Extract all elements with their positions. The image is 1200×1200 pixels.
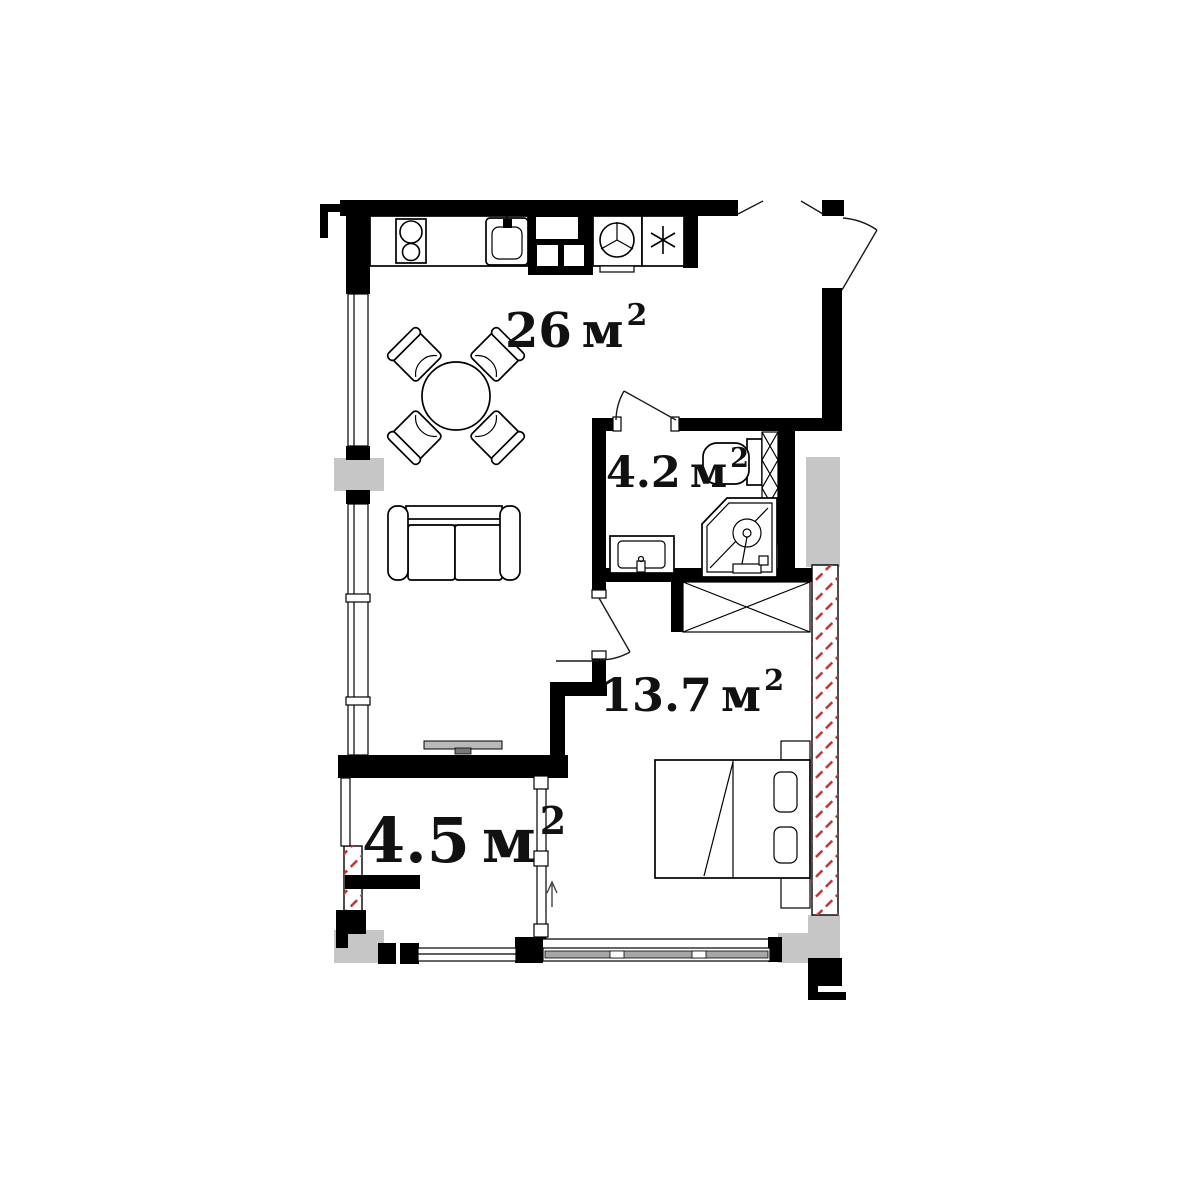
bedroom-door bbox=[556, 590, 630, 661]
hatched-wall-right bbox=[812, 565, 838, 915]
wardrobe-icon bbox=[683, 582, 810, 632]
column-right-upper bbox=[806, 457, 840, 567]
area-label-living: 26м2 bbox=[505, 298, 647, 359]
window-left-upper bbox=[348, 294, 368, 446]
nightstand-icon bbox=[781, 878, 810, 908]
washbasin-icon bbox=[610, 536, 674, 573]
column-left bbox=[334, 458, 384, 491]
bathroom-door-opening bbox=[615, 416, 673, 433]
floor-plan: 26м2 4.2м2 13.7м2 4.5м2 bbox=[0, 0, 1200, 1200]
chair-icon bbox=[386, 326, 444, 384]
refrigerator-icon bbox=[642, 216, 684, 266]
nightstand-icon bbox=[781, 741, 810, 760]
floor-plan-canvas: 26м2 4.2м2 13.7м2 4.5м2 bbox=[0, 0, 1200, 1200]
bedroom-window bbox=[543, 939, 770, 961]
sofa-icon bbox=[388, 506, 520, 580]
ventilation-shaft-icon bbox=[528, 203, 593, 275]
dining-table-icon bbox=[422, 362, 490, 430]
column-bottom-right bbox=[778, 915, 840, 963]
bed-icon bbox=[655, 741, 810, 908]
chair-icon bbox=[468, 408, 526, 466]
entrance-door bbox=[738, 201, 877, 290]
direction-arrow-icon bbox=[547, 882, 557, 907]
kitchen-sink-icon bbox=[486, 216, 528, 265]
window-left-lower bbox=[346, 504, 370, 755]
stove-icon bbox=[396, 219, 426, 263]
balcony-side-glazing bbox=[341, 778, 350, 846]
pillow-icon bbox=[774, 827, 797, 863]
shower-cabin-icon bbox=[702, 498, 777, 577]
balcony-bottom-glazing bbox=[418, 948, 516, 961]
chair-icon bbox=[386, 408, 444, 466]
area-label-bedroom: 13.7м2 bbox=[600, 663, 784, 722]
area-label-balcony: 4.5м2 bbox=[362, 798, 566, 877]
pillow-icon bbox=[774, 772, 797, 812]
tv-icon bbox=[424, 741, 502, 754]
washing-machine-icon bbox=[593, 216, 642, 272]
